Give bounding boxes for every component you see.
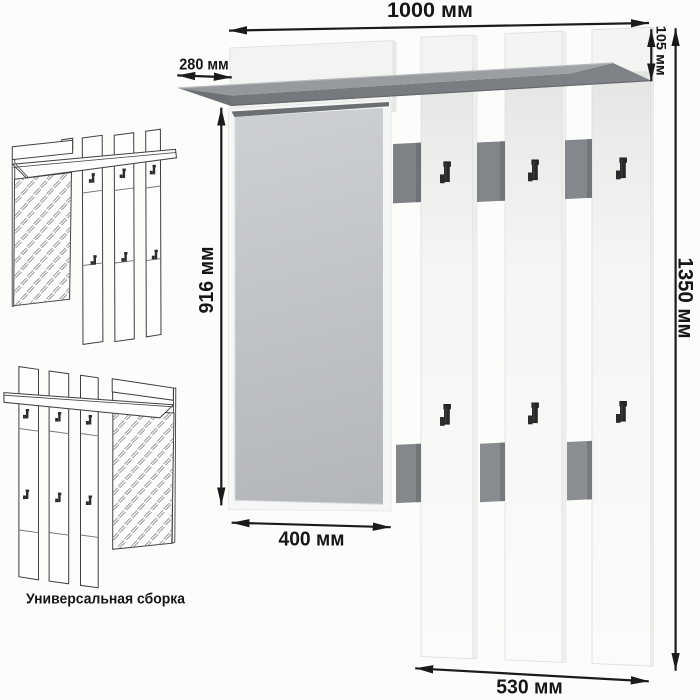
svg-text:916 мм: 916 мм <box>196 247 218 314</box>
svg-text:Универсальная сборка: Универсальная сборка <box>26 592 186 608</box>
svg-text:105 мм: 105 мм <box>653 26 669 76</box>
svg-text:1350 мм: 1350 мм <box>673 258 696 339</box>
svg-text:280 мм: 280 мм <box>179 57 229 74</box>
svg-text:400 мм: 400 мм <box>279 529 345 551</box>
svg-text:530 мм: 530 мм <box>496 677 563 699</box>
svg-text:1000 мм: 1000 мм <box>387 0 473 22</box>
